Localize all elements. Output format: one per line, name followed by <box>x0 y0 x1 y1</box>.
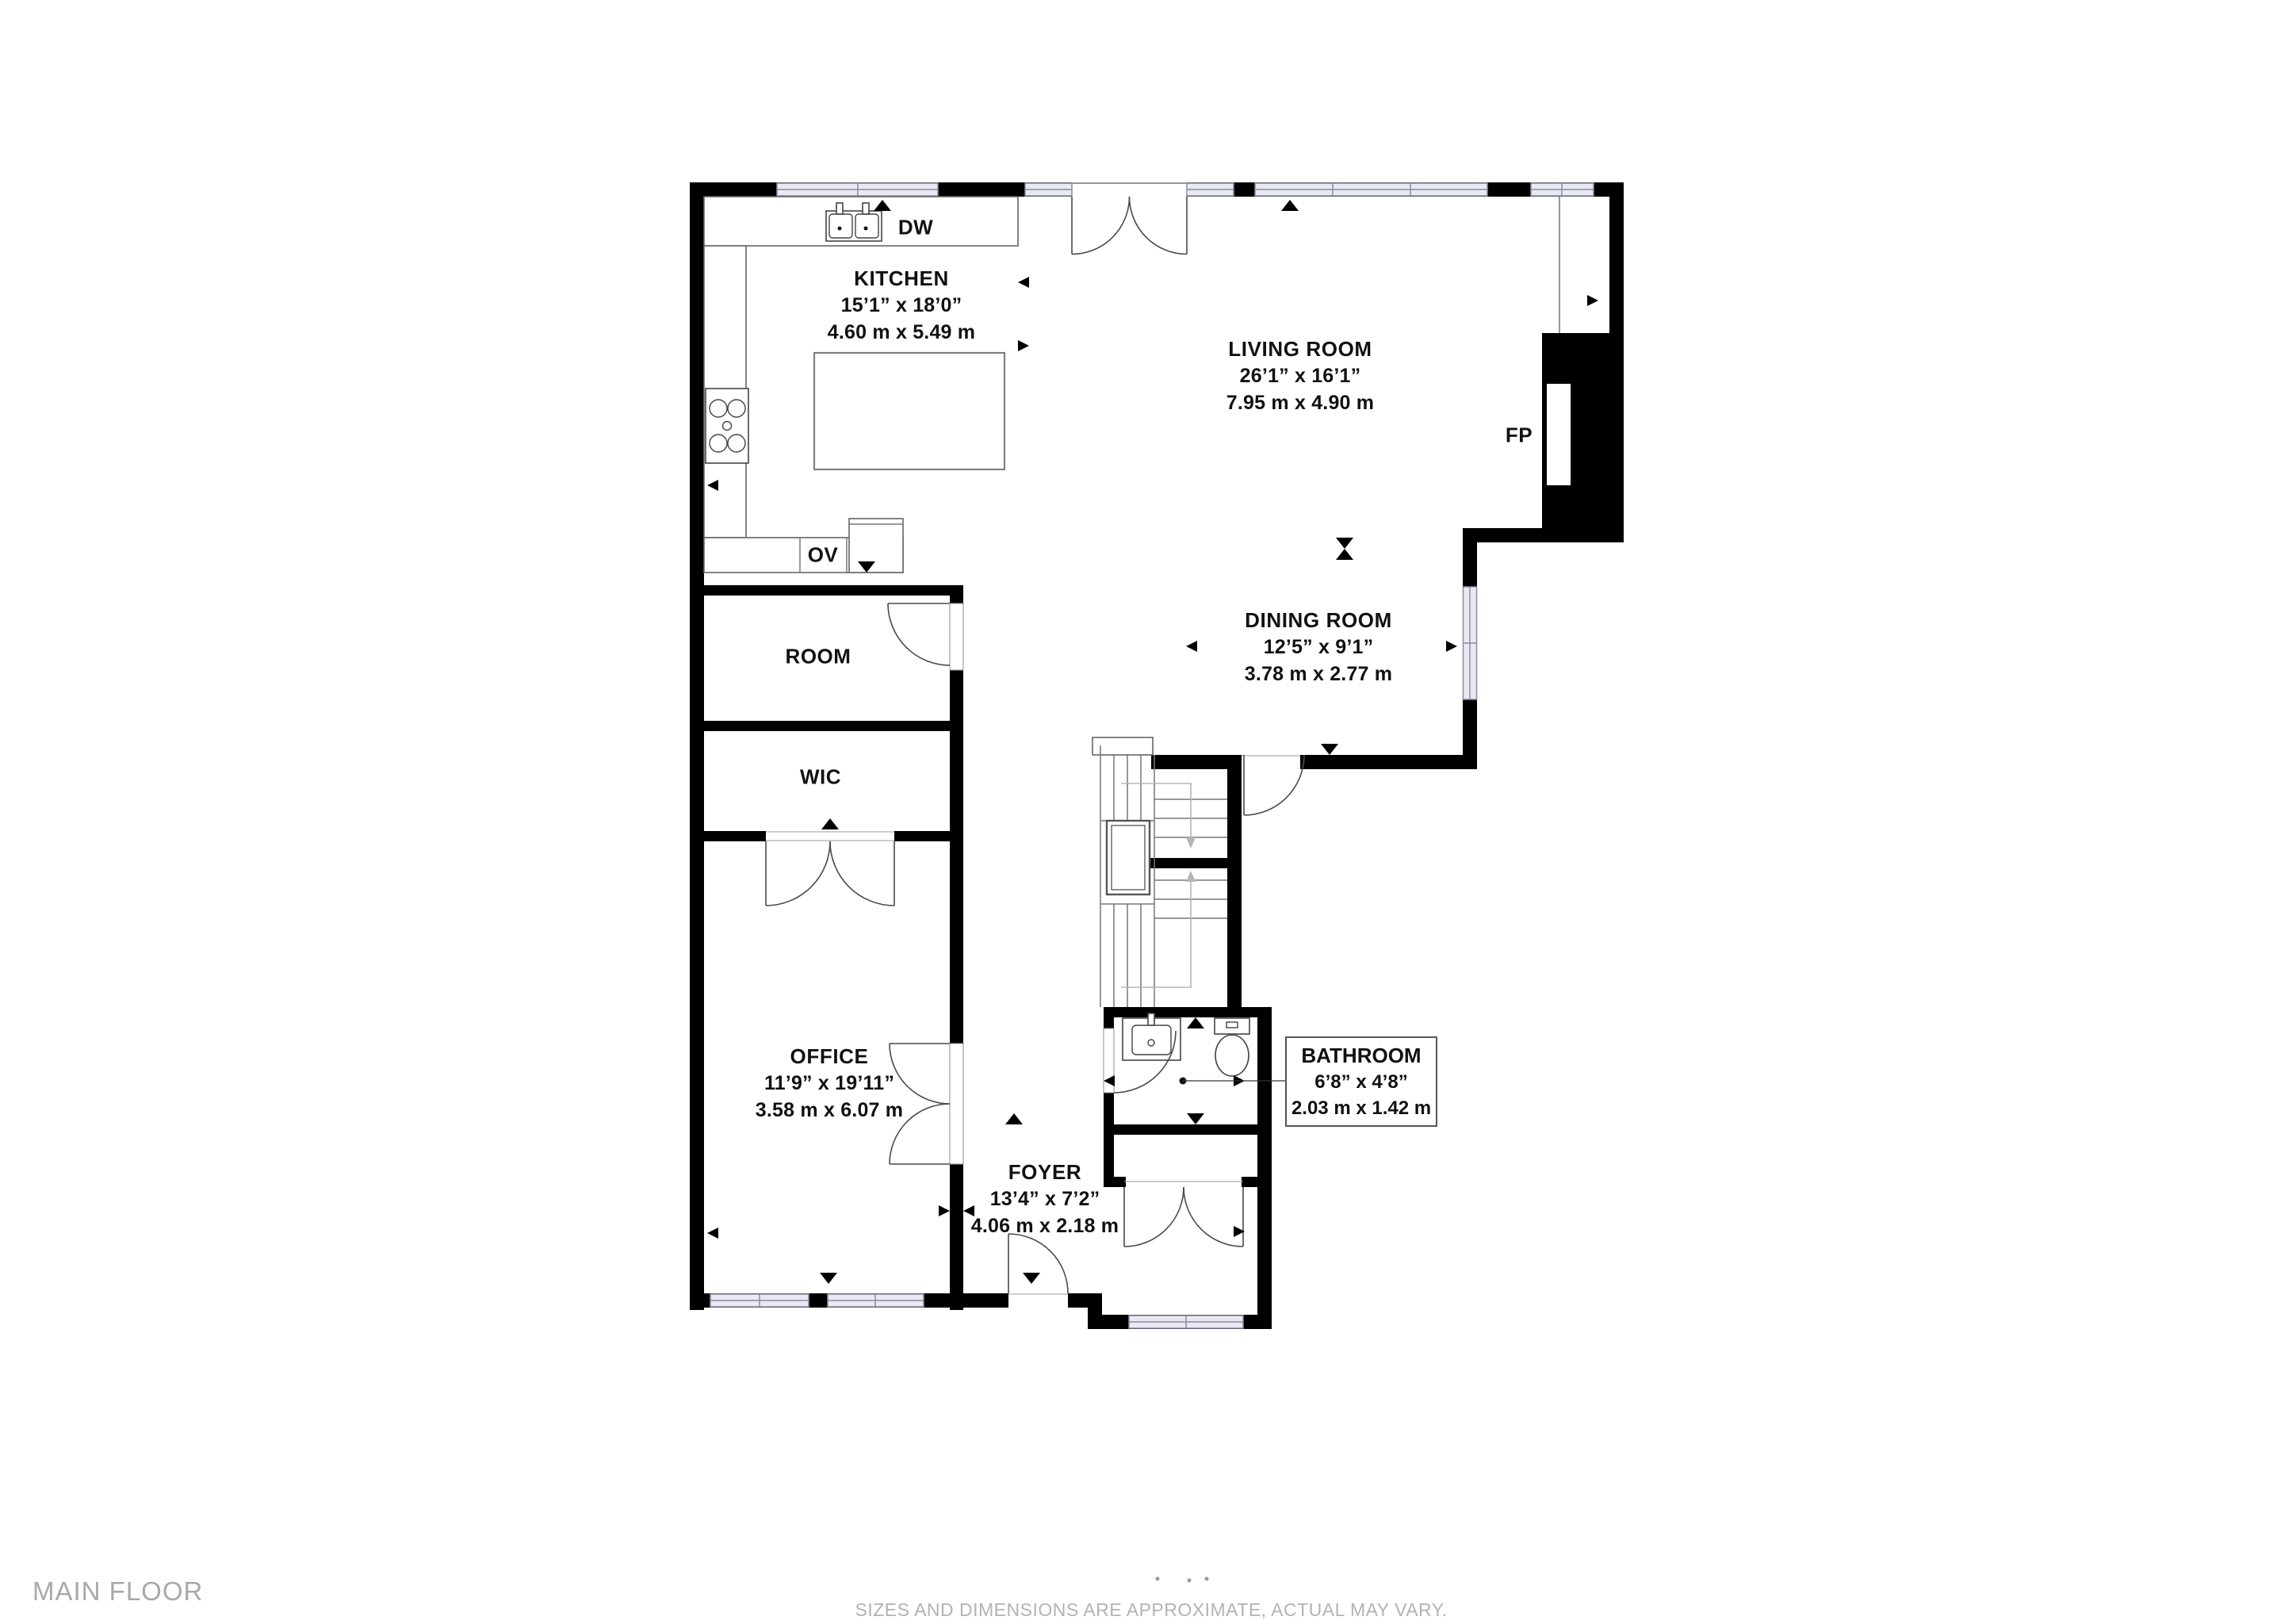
living-room-size-imperial: 26’1” x 16’1” <box>1226 362 1374 389</box>
wic-double-door <box>766 832 894 906</box>
kitchen-name: KITCHEN <box>828 265 975 292</box>
office-size-imperial: 11’9” x 19’11” <box>756 1070 903 1097</box>
floor-plan: KITCHEN 15’1” x 18’0” 4.60 m x 5.49 m LI… <box>0 0 2296 1624</box>
kitchen-size-metric: 4.60 m x 5.49 m <box>828 319 975 346</box>
room-door <box>888 603 963 670</box>
foyer-name: FOYER <box>971 1159 1119 1185</box>
kitchen-label: KITCHEN 15’1” x 18’0” 4.60 m x 5.49 m <box>828 265 975 346</box>
living-room-name: LIVING ROOM <box>1226 335 1374 362</box>
oven-label: OV <box>808 543 839 568</box>
office-name: OFFICE <box>756 1043 903 1070</box>
bathroom-label: BATHROOM 6’8” x 4’8” 2.03 m x 1.42 m <box>1286 1037 1437 1126</box>
disclaimer-text: SIZES AND DIMENSIONS ARE APPROXIMATE, AC… <box>855 1599 1447 1621</box>
kitchen-island <box>814 353 1004 469</box>
dishwasher-label: DW <box>898 216 933 240</box>
logo-marks <box>1156 1577 1209 1583</box>
wic-label: WIC <box>800 765 841 790</box>
dining-room-size-metric: 3.78 m x 2.77 m <box>1245 661 1392 688</box>
fireplace-label: FP <box>1506 423 1533 448</box>
floor-plan-drawing <box>0 0 2296 1624</box>
dining-room-name: DINING ROOM <box>1245 607 1392 634</box>
staircase <box>1093 737 1227 1007</box>
living-room-label: LIVING ROOM 26’1” x 16’1” 7.95 m x 4.90 … <box>1226 335 1374 416</box>
foyer-size-metric: 4.06 m x 2.18 m <box>971 1212 1119 1239</box>
foyer-label: FOYER 13’4” x 7’2” 4.06 m x 2.18 m <box>971 1159 1119 1239</box>
dining-room-size-imperial: 12’5” x 9’1” <box>1245 634 1392 661</box>
entry-door <box>1008 1234 1068 1294</box>
toilet-icon <box>1215 1018 1249 1076</box>
fireplace <box>1542 197 1609 528</box>
bathroom-size-imperial: 6’8” x 4’8” <box>1314 1069 1407 1095</box>
bathroom-size-metric: 2.03 m x 1.42 m <box>1291 1095 1431 1121</box>
living-room-size-metric: 7.95 m x 4.90 m <box>1226 389 1374 416</box>
wall-openings <box>766 182 1300 1308</box>
bathroom-name: BATHROOM <box>1301 1043 1421 1069</box>
floor-title: MAIN FLOOR <box>33 1576 203 1607</box>
room-label: ROOM <box>786 645 851 669</box>
kitchen-size-imperial: 15’1” x 18’0” <box>828 292 975 319</box>
dining-room-label: DINING ROOM 12’5” x 9’1” 3.78 m x 2.77 m <box>1245 607 1392 688</box>
foyer-size-imperial: 13’4” x 7’2” <box>971 1185 1119 1212</box>
closet-double-door <box>1124 1182 1243 1247</box>
office-size-metric: 3.58 m x 6.07 m <box>756 1097 903 1124</box>
office-label: OFFICE 11’9” x 19’11” 3.58 m x 6.07 m <box>756 1043 903 1124</box>
stove-icon <box>706 389 748 463</box>
